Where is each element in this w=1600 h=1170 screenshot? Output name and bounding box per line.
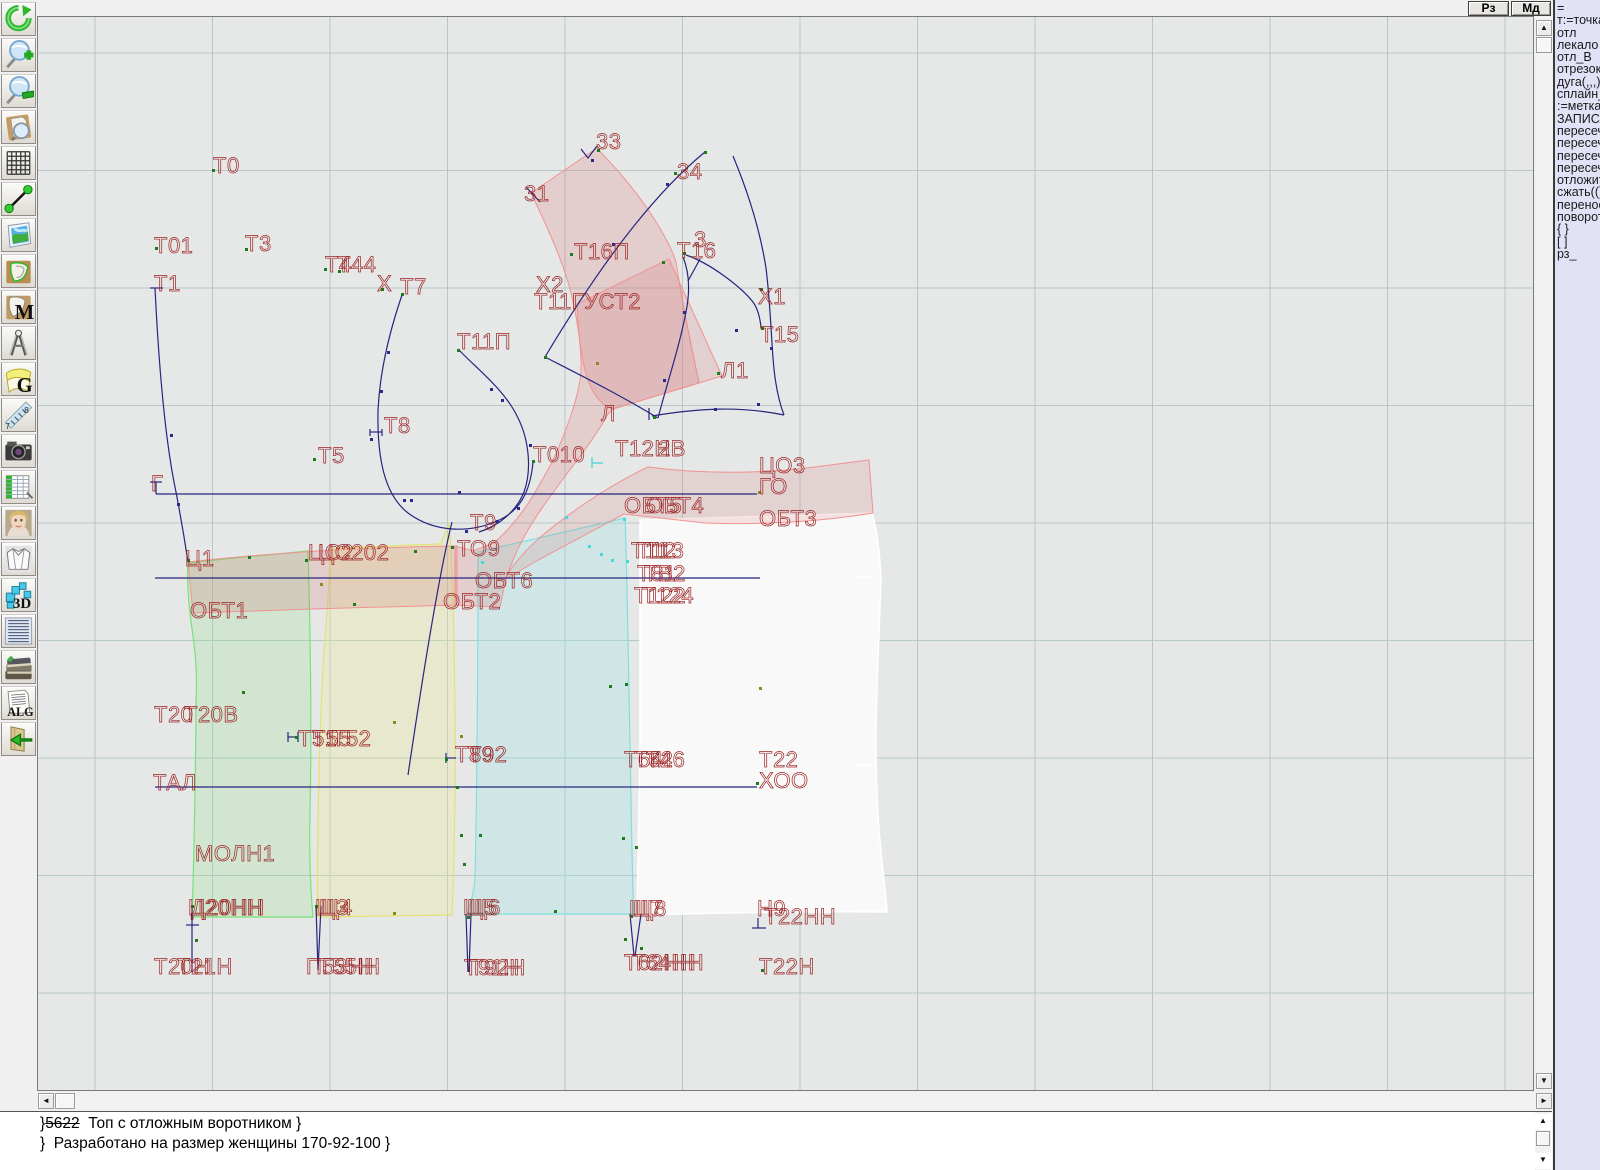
svg-text:Т0: Т0: [213, 153, 240, 178]
svg-text:Т010: Т010: [533, 442, 585, 467]
svg-text:Т21Н: Т21Н: [177, 954, 233, 979]
svg-text:2В: 2В: [658, 436, 686, 461]
svg-text:Т55Н: Т55Н: [318, 954, 374, 979]
svg-text:Д20НН: Д20НН: [191, 895, 265, 920]
svg-text:Т92: Т92: [468, 742, 507, 767]
svg-text:Т16П: Т16П: [574, 239, 630, 264]
svg-text:ОБТ1: ОБТ1: [190, 598, 248, 623]
svg-text:34: 34: [677, 159, 702, 184]
svg-text:ЦС202: ЦС202: [318, 540, 389, 565]
svg-text:Т15: Т15: [760, 322, 799, 347]
svg-text:Л: Л: [601, 401, 616, 426]
svg-text:Т20В: Т20В: [184, 702, 239, 727]
svg-text:Ц1: Ц1: [185, 546, 215, 571]
svg-text:Т13: Т13: [645, 538, 684, 563]
svg-text:Т52: Т52: [332, 726, 371, 751]
svg-text:31: 31: [524, 181, 549, 206]
svg-text:Х: Х: [377, 271, 392, 296]
svg-text:Т22НН: Т22НН: [764, 904, 836, 929]
svg-text:Т11П: Т11П: [457, 329, 511, 354]
svg-text:Щ4: Щ4: [319, 895, 353, 920]
svg-text:Т92Н: Т92Н: [470, 955, 526, 980]
svg-text:Т8: Т8: [384, 413, 411, 438]
svg-text:ТО9: ТО9: [457, 536, 500, 561]
svg-text:МОЛН1: МОЛН1: [195, 841, 275, 866]
svg-text:ОБТ4: ОБТ4: [646, 493, 704, 518]
svg-text:Щ6: Щ6: [467, 895, 501, 920]
svg-text:Т64НН: Т64НН: [632, 950, 704, 975]
svg-text:Щ8: Щ8: [633, 896, 667, 921]
svg-text:Т7: Т7: [400, 274, 427, 299]
svg-text:ALG: ALG: [7, 705, 34, 718]
svg-text:3: 3: [694, 227, 707, 252]
svg-text:ОБТ3: ОБТ3: [759, 506, 817, 531]
svg-text:Т22Н: Т22Н: [759, 954, 815, 979]
svg-text:Л1: Л1: [721, 358, 749, 383]
svg-text:Т9: Т9: [470, 510, 497, 535]
svg-text:Т01: Т01: [154, 233, 193, 258]
svg-text:ГО: ГО: [759, 474, 788, 499]
svg-text:7: 7: [5, 421, 10, 430]
svg-text:Т44: Т44: [337, 252, 376, 277]
svg-text:3D: 3D: [13, 596, 32, 610]
svg-text:Х1: Х1: [758, 284, 786, 309]
svg-text:8: 8: [24, 405, 29, 415]
svg-text:G: G: [17, 375, 33, 394]
svg-text:Т3: Т3: [245, 231, 272, 256]
svg-text:ХОО: ХОО: [759, 768, 809, 793]
svg-text:Т5: Т5: [318, 443, 345, 468]
svg-text:M: M: [15, 302, 34, 322]
svg-text:Г: Г: [151, 471, 163, 496]
svg-text:33: 33: [596, 129, 621, 154]
svg-text:Т1: Т1: [154, 271, 181, 296]
svg-text:ОБТ2: ОБТ2: [443, 589, 501, 614]
svg-text:Т46: Т46: [646, 747, 685, 772]
svg-text:ТАЛ: ТАЛ: [153, 770, 197, 795]
svg-text:Т124: Т124: [642, 583, 694, 608]
svg-text:Т11ГУСТ2: Т11ГУСТ2: [534, 289, 641, 314]
